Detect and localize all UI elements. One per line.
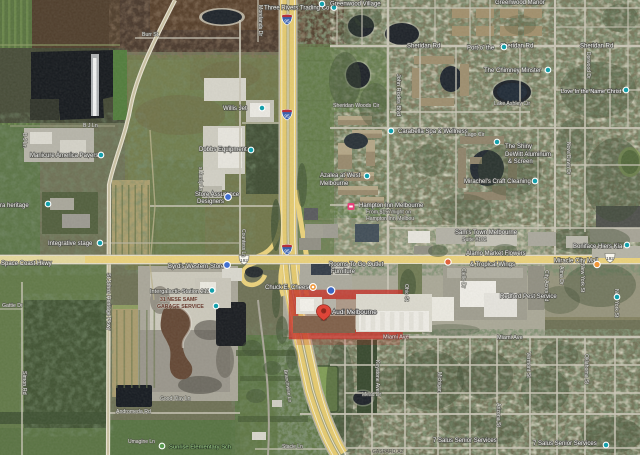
svg-text:Keystone Ave: Keystone Ave <box>374 360 380 392</box>
svg-text:Suite #102: Suite #102 <box>462 237 487 243</box>
svg-text:Sheridan Rd: Sheridan Rd <box>580 44 613 50</box>
svg-text:Sheridan Woods Cir: Sheridan Woods Cir <box>333 103 380 109</box>
svg-text:Hampton Inn Melbourne: Hampton Inn Melbourne <box>359 203 424 209</box>
svg-text:Greenwood Village: Greenwood Village <box>330 2 381 8</box>
svg-text:Intergalactic Station 2134: Intergalactic Station 2134 <box>150 289 213 295</box>
svg-text:Alamo Market Flowers: Alamo Market Flowers <box>466 251 526 257</box>
svg-text:GASPARD A2: GASPARD A2 <box>372 449 404 455</box>
svg-text:Mirachel's Craft Cleaning: Mirachel's Craft Cleaning <box>464 179 531 185</box>
svg-text:Miami Ave: Miami Ave <box>497 335 523 341</box>
svg-text:s Hardy Ln: s Hardy Ln <box>197 167 203 191</box>
svg-text:New York St: New York St <box>579 264 585 293</box>
svg-text:95: 95 <box>284 19 290 25</box>
svg-text:From $157/night on: From $157/night on <box>366 210 411 216</box>
svg-text:Stacie Ln: Stacie Ln <box>282 444 303 450</box>
svg-text:& Screen: & Screen <box>508 159 533 165</box>
svg-text:Manicure America Pavers: Manicure America Pavers <box>30 153 98 159</box>
svg-text:Store Assurance: Store Assurance <box>195 192 240 198</box>
svg-text:Designers: Designers <box>197 199 224 205</box>
svg-text:Melbourne: Melbourne <box>320 181 349 187</box>
svg-text:7 Salus Senior Services: 7 Salus Senior Services <box>433 438 497 444</box>
svg-text:Lago Cir: Lago Cir <box>465 132 485 138</box>
svg-text:Redford Pest Service: Redford Pest Service <box>500 294 557 300</box>
svg-text:Miracle City Mall: Miracle City Mall <box>554 259 598 265</box>
svg-text:31 NESE SAMF: 31 NESE SAMF <box>160 297 197 303</box>
svg-text:The Shiny: The Shiny <box>505 144 532 150</box>
svg-text:Dobbs Equipment: Dobbs Equipment <box>199 147 247 153</box>
svg-text:Dorwood Dr: Dorwood Dr <box>585 52 591 79</box>
svg-text:Azalea at West: Azalea at West <box>320 173 361 179</box>
svg-text:Simon Rd: Simon Rd <box>21 371 27 395</box>
svg-text:Chuck E. Cheese: Chuck E. Cheese <box>265 285 312 291</box>
svg-text:Good Clay Ln: Good Clay Ln <box>160 396 191 402</box>
svg-text:Morelands Dr: Morelands Dr <box>257 5 263 36</box>
svg-text:Space Coast Hkwy: Space Coast Hkwy <box>1 261 52 267</box>
svg-text:Sheridan Rd: Sheridan Rd <box>407 44 440 50</box>
svg-text:New York St: New York St <box>613 289 619 318</box>
svg-text:Miami Ave: Miami Ave <box>383 335 409 341</box>
svg-text:Port o' the: Port o' the <box>467 46 495 52</box>
svg-text:Arizona St: Arizona St <box>495 403 501 427</box>
svg-text:DeWitt Aluminum: DeWitt Aluminum <box>505 152 551 158</box>
svg-text:The Chimney Minster: The Chimney Minster <box>484 68 541 74</box>
svg-text:GARAGE SERVICE: GARAGE SERVICE <box>157 304 204 310</box>
svg-text:192: 192 <box>240 258 248 263</box>
svg-text:Sunrise Elementary Sch: Sunrise Elementary Sch <box>169 445 231 451</box>
svg-text:Audi Melbourne: Audi Melbourne <box>332 309 377 316</box>
svg-text:Alma Dr: Alma Dr <box>558 266 564 285</box>
svg-text:Cielle Dr: Cielle Dr <box>460 268 466 288</box>
svg-text:Greenwood Manor: Greenwood Manor <box>495 0 545 6</box>
svg-text:Willis Jet: Willis Jet <box>223 106 247 112</box>
svg-text:Umagine Ln: Umagine Ln <box>128 439 155 445</box>
svg-text:Gattie Dr: Gattie Dr <box>2 303 23 309</box>
svg-text:John Rodes Blvd: John Rodes Blvd <box>395 74 401 116</box>
svg-text:Lake Ashley Cir: Lake Ashley Cir <box>494 101 530 107</box>
svg-text:& Tropical Wings: & Tropical Wings <box>470 262 515 268</box>
svg-text:Ohio St: Ohio St <box>403 284 409 302</box>
svg-text:Oklahoma St: Oklahoma St <box>583 354 589 385</box>
svg-text:95: 95 <box>284 114 290 120</box>
svg-text:7 Salus Senior Services: 7 Salus Senior Services <box>533 441 597 447</box>
svg-text:Byrd's Western Store: Byrd's Western Store <box>168 264 225 270</box>
svg-text:Countess Ln: Countess Ln <box>240 229 246 257</box>
svg-text:Vermont St: Vermont St <box>525 352 531 378</box>
svg-text:Furniture: Furniture <box>331 269 356 275</box>
svg-text:St Johns Heritage Pkwy: St Johns Heritage Pkwy <box>105 273 111 331</box>
svg-text:Hampton Inn Melbou: Hampton Inn Melbou <box>366 216 414 222</box>
svg-text:Michigan: Michigan <box>436 372 442 393</box>
svg-text:Burr St: Burr St <box>142 32 159 38</box>
svg-text:Andromeda Rd: Andromeda Rd <box>116 409 151 415</box>
svg-text:Integrative stage: Integrative stage <box>48 241 93 247</box>
svg-text:ra heritage: ra heritage <box>0 203 29 209</box>
svg-text:Sam's Town Melbourne: Sam's Town Melbourne <box>455 230 518 236</box>
svg-text:95: 95 <box>284 249 290 255</box>
svg-text:Love In the Name Christ: Love In the Name Christ <box>561 89 622 95</box>
svg-text:Carabella Spa & Wellness: Carabella Spa & Wellness <box>398 129 468 135</box>
svg-text:192: 192 <box>606 256 614 261</box>
svg-text:B J Ln: B J Ln <box>21 133 27 148</box>
svg-text:B J Ln: B J Ln <box>83 123 98 129</box>
svg-text:Boniface Hiers Kia: Boniface Hiers Kia <box>573 244 623 250</box>
svg-text:Mead Dr: Mead Dr <box>362 392 382 398</box>
svg-text:Rooms To Go Outlet: Rooms To Go Outlet <box>329 262 384 268</box>
svg-text:Nova Dawn Dr: Nova Dawn Dr <box>565 142 571 175</box>
